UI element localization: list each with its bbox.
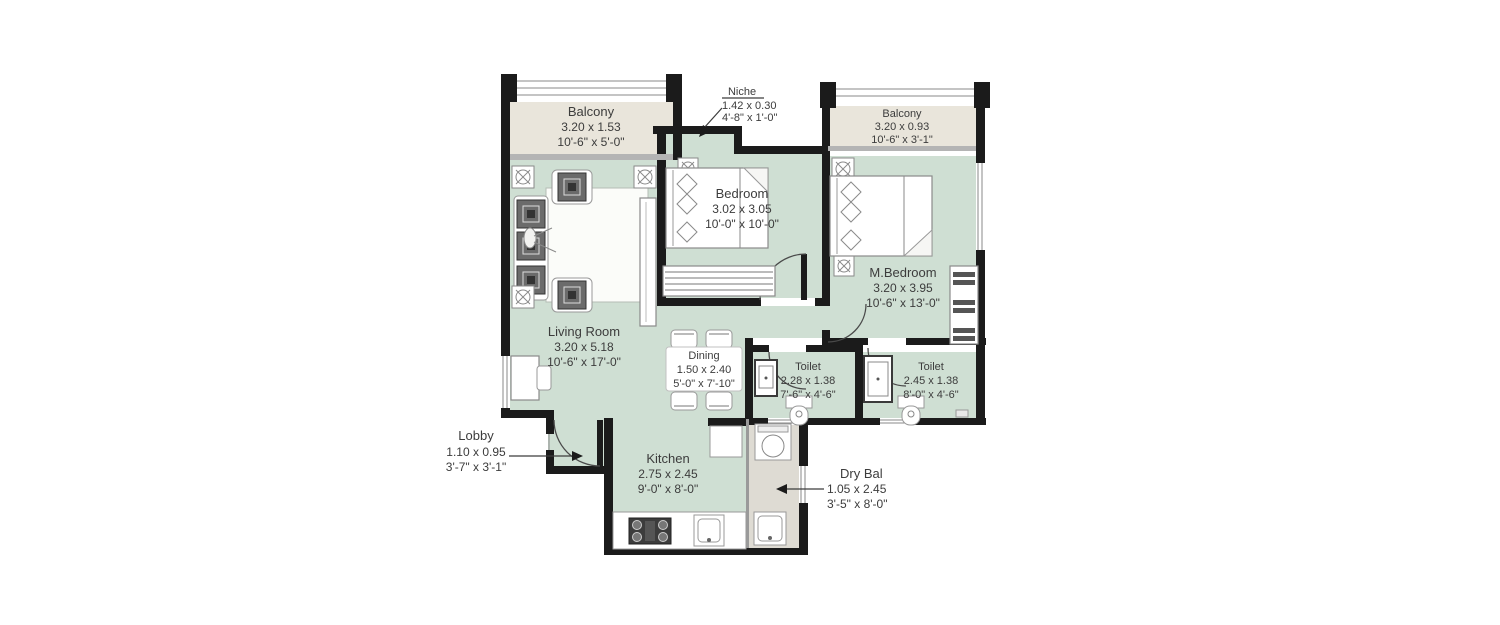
wall <box>604 418 613 555</box>
kitchen-name: Kitchen <box>646 451 689 466</box>
wall <box>653 126 742 134</box>
entry-door-leaf <box>597 420 603 466</box>
bedroom-name: Bedroom <box>716 186 769 201</box>
tv-console <box>640 198 656 326</box>
toilet2-name: Toilet <box>918 361 944 373</box>
planter-icon <box>834 256 854 276</box>
corridor-floor <box>746 306 822 338</box>
toilet1-dim-m: 2.28 x 1.38 <box>781 375 835 387</box>
dry-balcony-label: Dry Bal 1.05 x 2.45 3'-5" x 8'-0" <box>827 466 887 511</box>
master-bedroom-label: M.Bedroom 3.20 x 3.95 10'-6" x 13'-0" <box>866 265 940 310</box>
wall <box>976 106 985 150</box>
master-wardrobe <box>950 266 978 344</box>
bedroom-dim-m: 3.02 x 3.05 <box>712 202 772 216</box>
dining-name: Dining <box>688 350 719 362</box>
wall <box>734 146 830 154</box>
balcony1-sill <box>510 154 673 160</box>
toilet1-dim-ft: 7'-6" x 4'-6" <box>780 389 836 401</box>
desk-chair <box>537 366 551 390</box>
bedroom-dim-ft: 10'-0" x 10'-0" <box>705 217 779 231</box>
planter-icon <box>512 286 534 308</box>
bedroom-door-leaf <box>801 254 807 300</box>
master-bedroom-name: M.Bedroom <box>869 265 936 280</box>
dry-balcony-dim-m: 1.05 x 2.45 <box>827 482 887 496</box>
toilet2-washing-point <box>956 410 968 417</box>
floor-plan-page: Balcony 3.20 x 1.53 10'-6" x 5'-0" Balco… <box>0 0 1500 625</box>
balcony2-dim-ft: 10'-6" x 3'-1" <box>871 134 933 146</box>
wall <box>799 503 808 555</box>
wall <box>822 150 830 302</box>
kitchen-platform <box>710 426 742 457</box>
balcony1-dim-ft: 10'-6" x 5'-0" <box>557 135 624 149</box>
living-room-dim-ft: 10'-6" x 17'-0" <box>547 355 621 369</box>
lobby-dim-m: 1.10 x 0.95 <box>446 445 506 459</box>
single-seat-bottom <box>552 278 592 312</box>
dry-balcony-dim-ft: 3'-5" x 8'-0" <box>827 497 887 511</box>
living-room-label: Living Room 3.20 x 5.18 10'-6" x 17'-0" <box>547 324 621 369</box>
wall <box>501 74 517 102</box>
wall <box>666 74 682 102</box>
planter-icon <box>512 166 534 188</box>
niche-leader-line <box>704 108 722 128</box>
planter-icon <box>634 166 656 188</box>
niche-label: Niche 1.42 x 0.30 4'-8" x 1'-0" <box>722 86 778 124</box>
single-seat-top <box>552 170 592 204</box>
toilet2-dim-m: 2.45 x 1.38 <box>904 375 958 387</box>
utility-sink <box>754 512 786 545</box>
niche-dim-m: 1.42 x 0.30 <box>722 100 776 112</box>
balcony2-dim-m: 3.20 x 0.93 <box>875 121 929 133</box>
balcony1-name: Balcony <box>568 104 615 119</box>
wall <box>501 410 554 418</box>
study-desk <box>511 356 539 400</box>
wall <box>546 418 554 434</box>
dry-balcony-window <box>799 466 808 503</box>
wall <box>745 338 753 425</box>
wall <box>501 100 510 160</box>
washing-machine <box>755 424 791 460</box>
niche-name: Niche <box>728 86 756 98</box>
dining-dim-ft: 5'-0" x 7'-10" <box>673 378 735 390</box>
toilet2-dim-ft: 8'-0" x 4'-6" <box>903 389 959 401</box>
niche-dim-ft: 4'-8" x 1'-0" <box>722 112 778 124</box>
kitchen-label: Kitchen 2.75 x 2.45 9'-0" x 8'-0" <box>638 451 698 496</box>
kitchen-dim-m: 2.75 x 2.45 <box>638 467 698 481</box>
lobby-name: Lobby <box>458 428 494 443</box>
wall <box>855 345 863 425</box>
toilet1-name: Toilet <box>795 361 821 373</box>
balcony1-dim-m: 3.20 x 1.53 <box>561 120 621 134</box>
bedroom-wardrobe <box>663 266 775 296</box>
wall <box>806 345 858 352</box>
balcony1-window <box>517 76 666 102</box>
toilet1-washbasin <box>755 360 777 396</box>
lobby-label: Lobby 1.10 x 0.95 3'-7" x 3'-1" <box>446 428 506 474</box>
bedroom-label: Bedroom 3.02 x 3.05 10'-0" x 10'-0" <box>705 186 779 231</box>
master-bedroom-dim-m: 3.20 x 3.95 <box>873 281 933 295</box>
wall <box>822 330 830 338</box>
wall <box>799 419 808 466</box>
gas-stove <box>629 518 671 544</box>
living-room-name: Living Room <box>548 324 620 339</box>
balcony2-name: Balcony <box>882 108 922 120</box>
master-bedroom-dim-ft: 10'-6" x 13'-0" <box>866 296 940 310</box>
wall <box>708 418 749 426</box>
wall <box>822 106 830 150</box>
lobby-dim-ft: 3'-7" x 3'-1" <box>446 460 506 474</box>
master-bed <box>830 176 932 256</box>
dry-balcony-name: Dry Bal <box>840 466 883 481</box>
balcony2-window <box>836 84 974 106</box>
dining-dim-m: 1.50 x 2.40 <box>677 364 731 376</box>
living-window <box>501 356 510 408</box>
living-room-dim-m: 3.20 x 5.18 <box>554 340 614 354</box>
floor-plan-canvas: Balcony 3.20 x 1.53 10'-6" x 5'-0" Balco… <box>0 0 1500 625</box>
master-bedroom-window <box>976 163 985 250</box>
wall <box>546 466 608 474</box>
wall <box>974 82 990 108</box>
kitchen-sink <box>694 515 724 546</box>
toilet2-shower <box>864 356 892 402</box>
balcony2-sill <box>828 146 976 151</box>
kitchen-dim-ft: 9'-0" x 8'-0" <box>638 482 698 496</box>
wall <box>753 345 769 352</box>
wall <box>657 298 761 306</box>
wall <box>820 82 836 108</box>
lobby-vestibule-floor <box>548 418 604 468</box>
